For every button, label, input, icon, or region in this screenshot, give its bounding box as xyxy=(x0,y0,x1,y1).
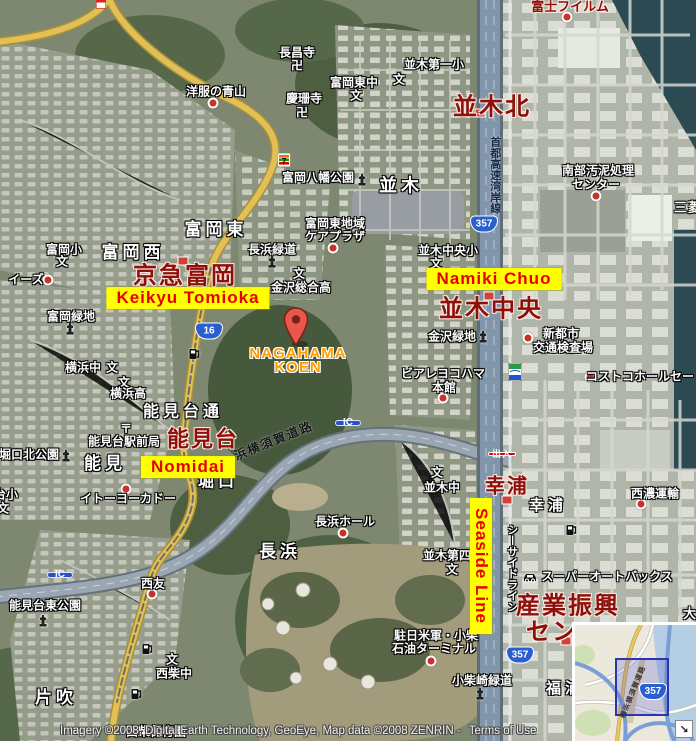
map-label: Keikyu Tomioka xyxy=(106,287,269,309)
poi-dot xyxy=(328,243,339,254)
map-label: 長昌寺 xyxy=(279,47,315,60)
map-label: 幸浦 xyxy=(485,477,529,498)
map-label: 並木中 xyxy=(424,482,460,495)
map-label: 駐日米軍・小柴 xyxy=(394,630,478,643)
map-label: 能見台駅前局 xyxy=(88,436,160,449)
map-label: 〒 xyxy=(120,423,132,436)
seven-eleven-icon: 7 xyxy=(278,153,291,167)
map-label: 能見 xyxy=(84,455,126,473)
poi-dot xyxy=(208,98,219,109)
map-label: 富岡八幡公園 xyxy=(282,172,354,185)
map-label: 金沢緑地 xyxy=(428,331,476,344)
gas-station-icon xyxy=(142,643,153,655)
gas-station-icon xyxy=(131,688,142,700)
map-label: 金沢総合高 xyxy=(271,282,331,295)
map-label: イーズ xyxy=(8,274,43,287)
map-label: 横浜高 xyxy=(110,388,146,401)
map-label: 文 xyxy=(431,467,443,480)
map-label: 能見台通 xyxy=(143,405,223,422)
map-label: 新都市 xyxy=(543,328,579,341)
map-label: 京急富岡 xyxy=(133,263,237,288)
route-357-shield: 357 xyxy=(506,647,534,664)
attribution-bar: Imagery ©2008, Digital Earth Technology,… xyxy=(60,725,536,737)
map-label: 大 xyxy=(683,607,696,621)
map-label: 片吹 xyxy=(35,689,77,707)
map-label: 文 xyxy=(393,74,405,87)
map-label: KOEN xyxy=(274,360,321,376)
poi-dot xyxy=(426,656,437,667)
route-16-shield: 16 xyxy=(195,323,223,340)
map-label: 文 xyxy=(0,503,9,516)
map-label: 長浜ホール xyxy=(315,516,375,529)
terms-of-use-link[interactable]: Terms of Use xyxy=(469,725,537,737)
map-label: 能見台東公園 xyxy=(9,600,81,613)
store-icon xyxy=(96,0,106,9)
map-label: 三菱 xyxy=(674,201,696,215)
map-label: Namiki Chuo xyxy=(427,268,562,290)
monument-icon xyxy=(357,174,367,186)
poi-dot xyxy=(338,528,349,539)
map-label: 並木中央 xyxy=(439,296,543,321)
map-canvas[interactable]: 並木富岡東富岡西能見台通能見堀口長浜幸浦福浦片吹三菱大長昌寺卍洋服の青山慶珊寺卍… xyxy=(0,0,696,741)
map-label: 能見台 xyxy=(167,427,239,450)
svg-text:7: 7 xyxy=(281,157,286,167)
map-label: 文 xyxy=(166,654,178,667)
map-label: 本館 xyxy=(432,382,456,395)
map-label: 産業振興 xyxy=(516,593,620,618)
map-label: 富岡東 xyxy=(185,221,248,239)
seaside-station-icon xyxy=(508,363,522,381)
map-label: 長浜緑道 xyxy=(248,244,296,257)
map-label: Seaside Line xyxy=(470,498,492,634)
monument-icon xyxy=(475,688,485,700)
map-label: 石油ターミナル xyxy=(392,643,476,656)
map-label: 文 xyxy=(350,90,362,103)
map-label: スーパーオートバックス xyxy=(541,571,673,584)
map-label: 文 xyxy=(106,362,118,375)
map-label: 横浜中 xyxy=(65,362,101,375)
map-label: 並木北 xyxy=(453,94,531,119)
map-label: 卍 xyxy=(296,107,308,120)
gas-station-icon xyxy=(566,524,577,536)
map-label: 幸浦 xyxy=(529,498,567,514)
map-label: 堀口北公園 xyxy=(0,449,59,462)
map-label: 西友 xyxy=(141,578,165,591)
exit-badge: 出入 xyxy=(488,452,516,456)
ic-badge: IC xyxy=(47,572,73,578)
map-label: 並木 xyxy=(379,177,423,196)
map-label: 首都高速湾岸線 xyxy=(488,137,500,214)
map-label: 富士フイルム xyxy=(531,0,609,14)
map-label: 交通検査場 xyxy=(533,342,593,355)
map-label: 文 xyxy=(56,256,68,269)
monument-icon xyxy=(478,331,488,343)
monument-icon xyxy=(65,323,75,335)
monument-icon xyxy=(38,615,48,627)
map-label: Nomidai xyxy=(141,456,235,478)
map-label: 富岡東中 xyxy=(330,77,378,90)
map-label: ビアレヨコハマ xyxy=(401,368,485,381)
map-label: 洋服の青山 xyxy=(186,86,246,99)
monument-icon xyxy=(61,450,71,462)
map-label: 西濃運輸 xyxy=(631,488,679,501)
map-label: 南部汚泥処理 xyxy=(562,165,634,178)
map-label: セン xyxy=(526,619,578,644)
inset-collapse-button[interactable]: ↘ xyxy=(675,720,693,738)
map-label: 西柴中 xyxy=(156,668,192,681)
attribution-text: Imagery ©2008, Digital Earth Technology,… xyxy=(60,725,461,737)
map-label: 慶珊寺 xyxy=(286,93,322,106)
monument-icon xyxy=(267,256,277,268)
map-label: 小柴崎緑道 xyxy=(452,675,512,688)
map-label: 浜横須賀道路 xyxy=(233,419,316,462)
route-357-shield: 357 xyxy=(470,216,498,233)
map-label: 富岡西 xyxy=(102,244,165,262)
ic-badge: IC xyxy=(335,420,361,426)
map-label: コストコホールセー xyxy=(586,371,694,384)
poi-dot xyxy=(523,333,534,344)
gas-station-icon xyxy=(189,348,200,360)
poi-dot xyxy=(591,191,602,202)
map-label: 並木中央小 xyxy=(418,245,478,258)
map-pin[interactable] xyxy=(283,307,309,352)
car-shop-icon xyxy=(523,572,537,582)
map-label: 卍 xyxy=(291,60,303,73)
map-label: 長浜 xyxy=(259,543,301,561)
map-label: 富岡緑地 xyxy=(47,311,95,324)
inset-map[interactable]: 横浜横須賀道路 357 ↘ xyxy=(572,622,696,741)
map-label: 文 xyxy=(293,268,305,281)
map-label: 富岡東地域 xyxy=(305,218,365,231)
map-label: イトーヨーカドー xyxy=(80,493,176,506)
map-label: 文 xyxy=(446,564,458,577)
map-label: センター xyxy=(572,179,620,192)
map-label: ケアプラザ xyxy=(305,231,365,244)
map-label: 並木第一小 xyxy=(404,59,464,72)
map-label: 並木第四 xyxy=(423,550,471,563)
map-label: 能見台小 xyxy=(0,489,18,502)
poi-dot xyxy=(43,275,54,286)
